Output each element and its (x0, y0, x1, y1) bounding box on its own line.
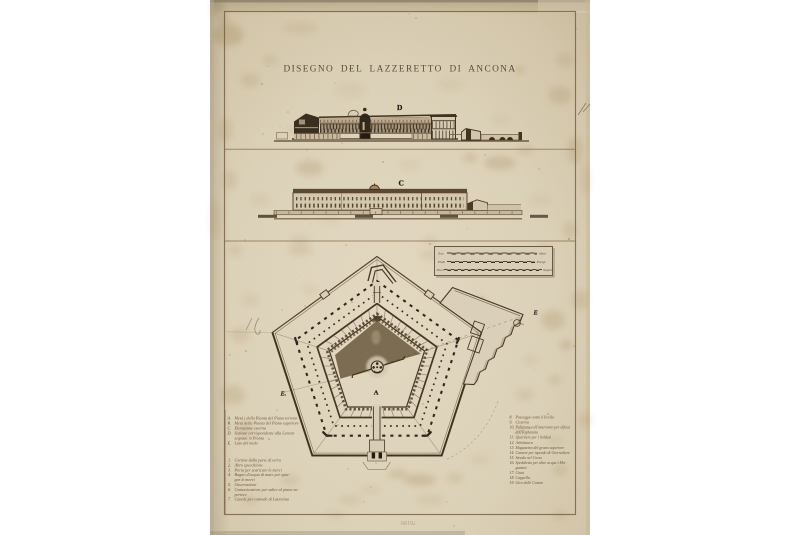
svg-text:9.: 9. (510, 421, 513, 425)
svg-text:D: D (397, 103, 403, 112)
svg-text:Metri: Metri (538, 251, 546, 255)
svg-text:Strada nel Corso: Strada nel Corso (516, 456, 543, 460)
svg-text:8.: 8. (510, 416, 513, 420)
svg-text:13.: 13. (510, 446, 515, 450)
svg-text:6.: 6. (228, 487, 231, 492)
svg-text:4.: 4. (228, 472, 231, 477)
svg-text:Parigi: Parigi (536, 260, 546, 264)
svg-text:C: C (399, 179, 404, 188)
svg-text:18.: 18. (510, 476, 515, 480)
svg-text:Cisterna: Cisterna (516, 421, 529, 425)
svg-text:17.: 17. (510, 471, 515, 475)
svg-text:76189: 76189 (401, 519, 416, 525)
svg-text:Tese: Tese (438, 251, 444, 255)
svg-text:Arbolatura: Arbolatura (515, 441, 533, 445)
svg-text:dell'Esplanata: dell'Esplanata (516, 431, 538, 435)
svg-text:gazzini: gazzini (516, 466, 527, 470)
svg-text:Giro delle Catene: Giro delle Catene (516, 481, 544, 485)
svg-text:12.: 12. (510, 441, 515, 445)
svg-text:Napolit.: Napolit. (542, 268, 554, 272)
svg-text:Quartiere per i Soldati: Quartiere per i Soldati (516, 436, 551, 440)
svg-text:Lato del molo: Lato del molo (234, 441, 258, 446)
svg-text:11.: 11. (510, 436, 515, 440)
svg-text:Cappella: Cappella (516, 476, 530, 480)
svg-text:Magazzino del grano superiore: Magazzino del grano superiore (515, 446, 565, 450)
svg-text:E.: E. (280, 391, 287, 398)
svg-text:D.: D. (227, 431, 232, 436)
svg-text:A: A (374, 390, 379, 397)
svg-text:Passeggio sotto il livello: Passeggio sotto il livello (515, 416, 554, 420)
svg-text:Camere per ispezdo di Giornali: Camere per ispezdo di Giornaliere (516, 451, 570, 455)
svg-text:19.: 19. (510, 481, 515, 485)
svg-text:Piedi: Piedi (437, 260, 445, 264)
svg-text:Canale per comodo di Lattovina: Canale per comodo di Lattovina (235, 497, 289, 502)
svg-text:7.: 7. (228, 497, 231, 502)
svg-text:Passi: Passi (436, 268, 444, 272)
svg-text:10.: 10. (510, 426, 515, 430)
svg-text:E.: E. (227, 441, 232, 446)
svg-text:14.: 14. (510, 451, 515, 455)
svg-text:DISEGNO DEL LAZZERETTO DI ANCO: DISEGNO DEL LAZZERETTO DI ANCONA (284, 65, 517, 75)
svg-text:Palizzata coll'intervento per: Palizzata coll'intervento per difesa (515, 426, 570, 430)
svg-text:15.: 15. (510, 456, 515, 460)
svg-text:16.: 16. (510, 461, 515, 465)
svg-text:Cinta: Cinta (516, 471, 525, 475)
svg-text:Spedaletto per altre acque i M: Spedaletto per altre acque i Ma- (516, 461, 567, 465)
svg-text:E: E (533, 310, 539, 317)
